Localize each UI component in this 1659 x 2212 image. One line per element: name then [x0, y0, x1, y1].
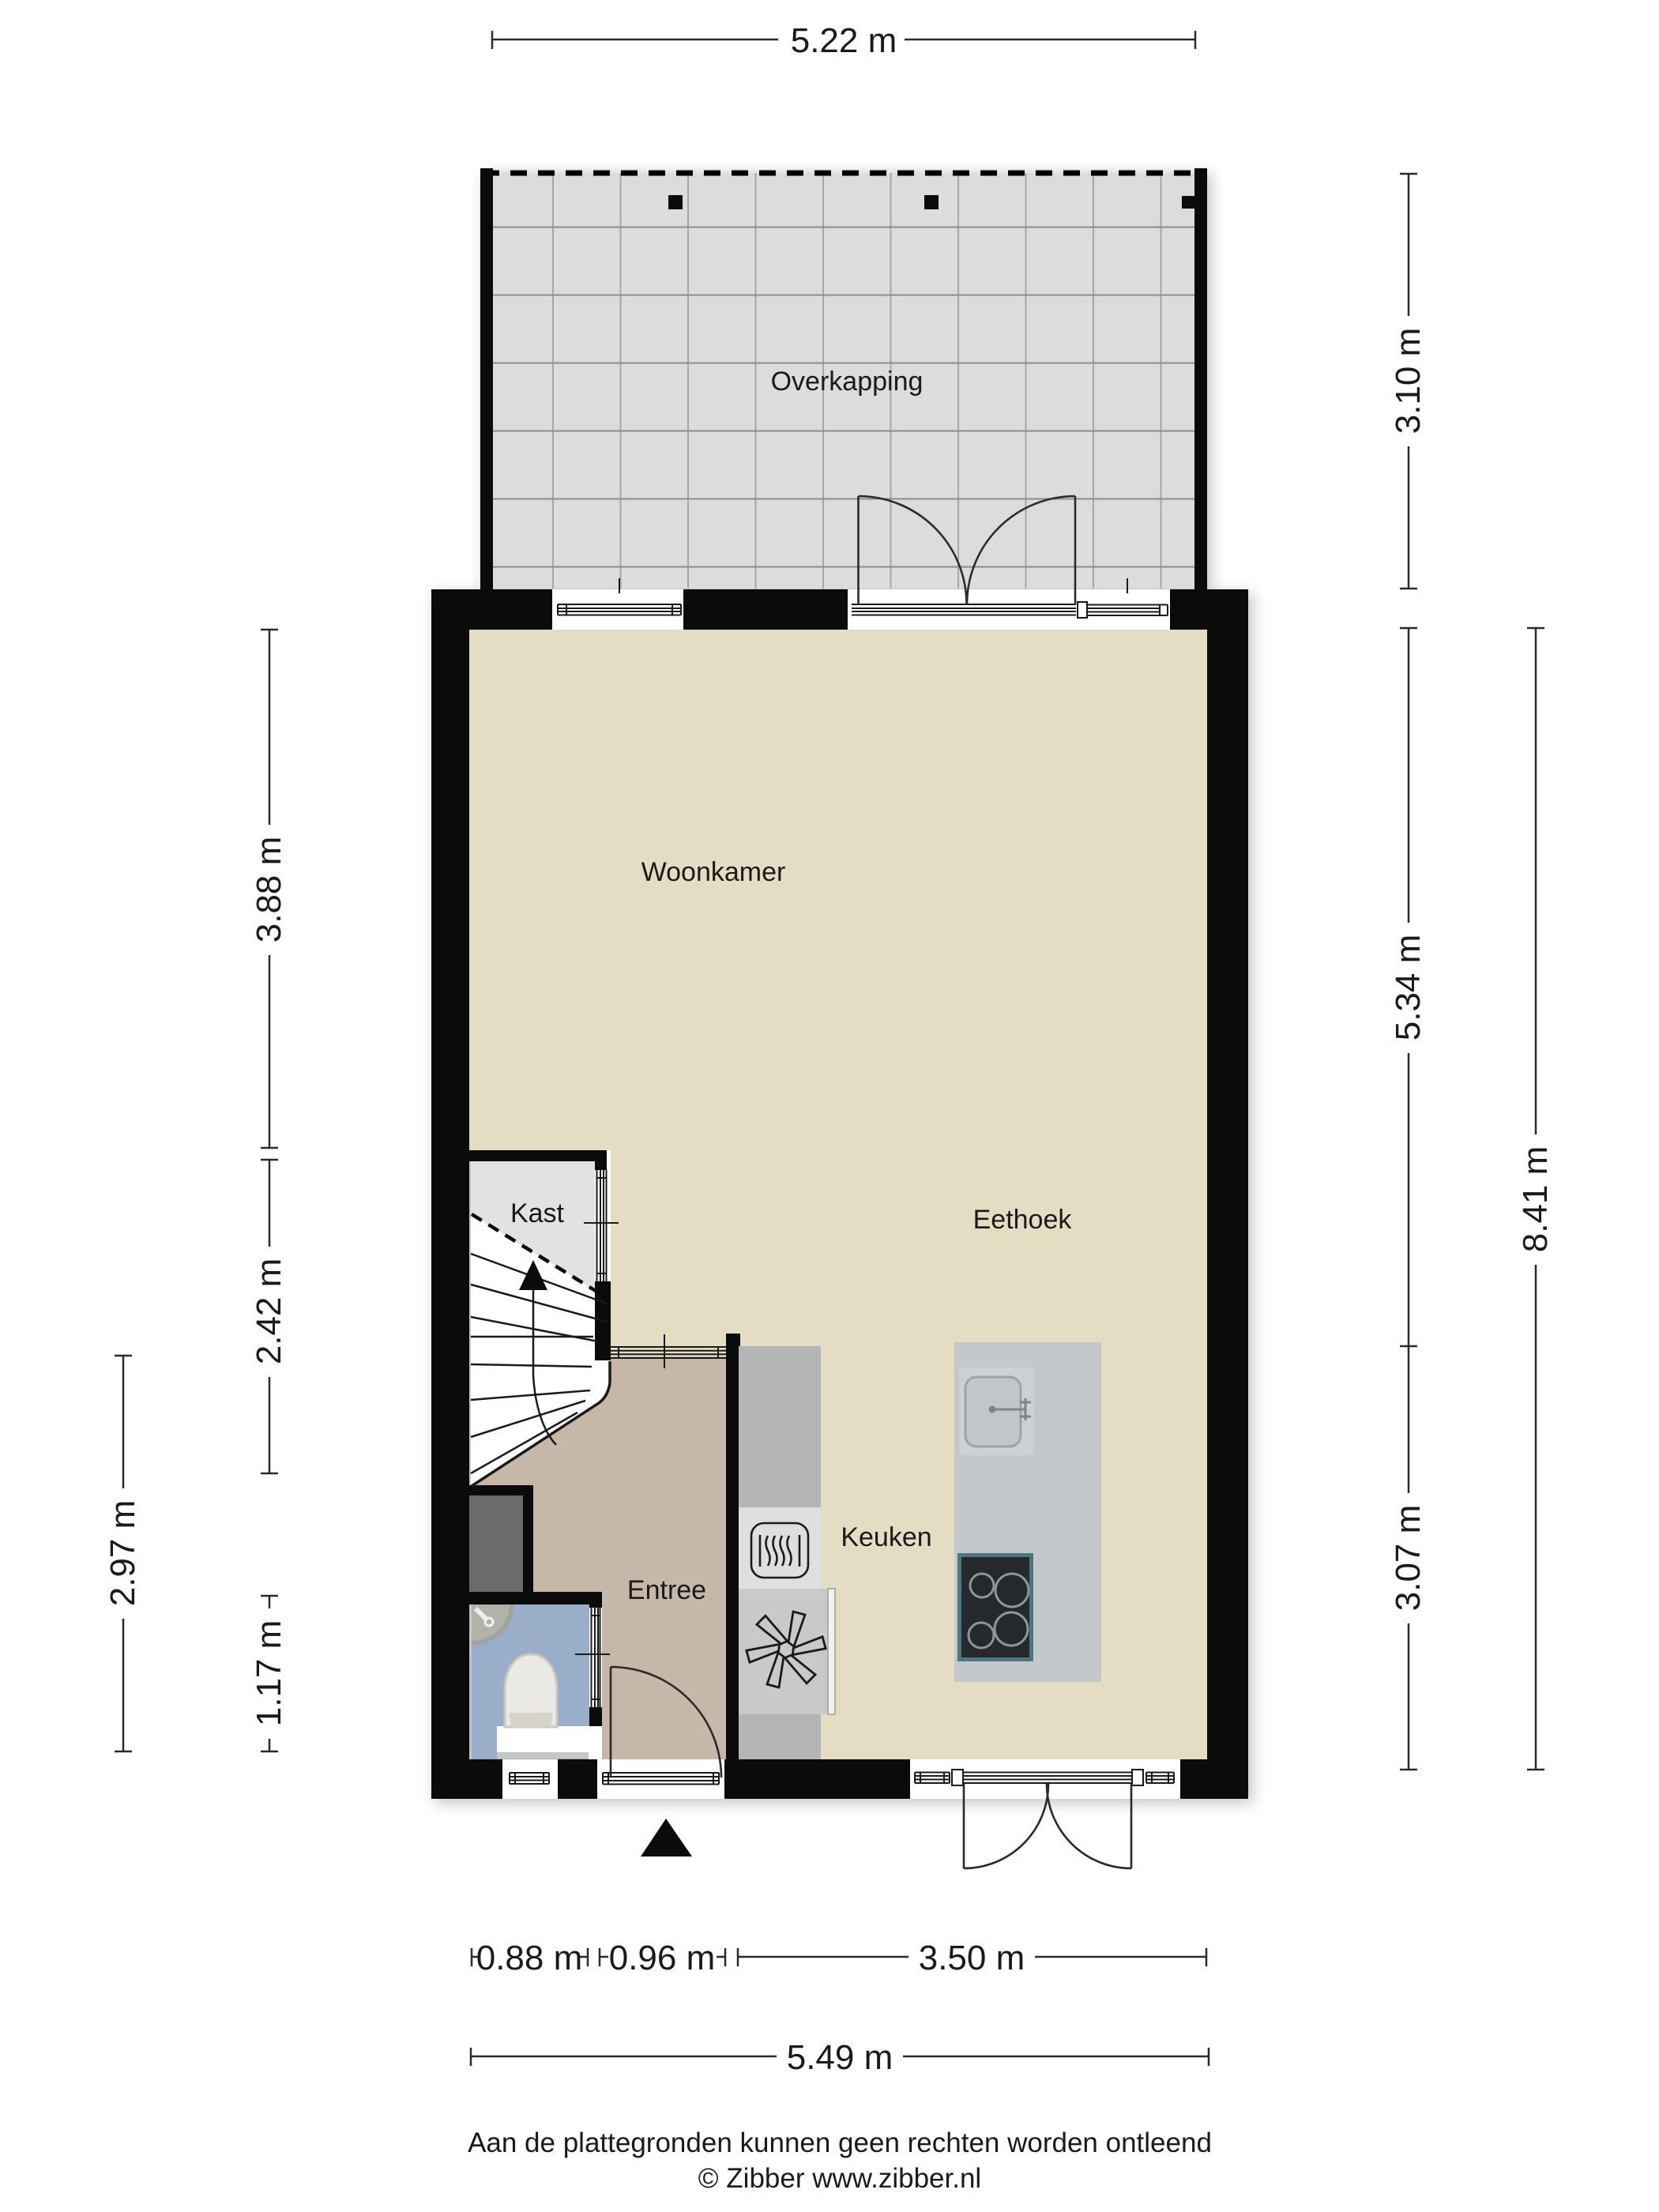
svg-text:3.50 m: 3.50 m — [919, 1939, 1025, 1977]
svg-text:5.22 m: 5.22 m — [791, 21, 897, 60]
svg-text:2.42 m: 2.42 m — [250, 1258, 288, 1365]
svg-text:0.96 m: 0.96 m — [609, 1939, 716, 1977]
svg-text:© Zibber www.zibber.nl: © Zibber www.zibber.nl — [698, 2163, 981, 2194]
svg-text:2.97 m: 2.97 m — [103, 1500, 142, 1607]
svg-text:3.88 m: 3.88 m — [250, 837, 288, 943]
svg-text:8.41 m: 8.41 m — [1516, 1146, 1555, 1253]
svg-text:5.34 m: 5.34 m — [1389, 935, 1428, 1041]
svg-text:3.10 m: 3.10 m — [1389, 328, 1428, 434]
svg-text:5.49 m: 5.49 m — [787, 2038, 893, 2077]
svg-text:Woonkamer: Woonkamer — [641, 857, 786, 887]
svg-text:Overkapping: Overkapping — [771, 367, 924, 397]
svg-text:0.88 m: 0.88 m — [476, 1939, 583, 1977]
svg-text:Aan de plattegronden kunnen ge: Aan de plattegronden kunnen geen rechten… — [468, 2127, 1212, 2158]
svg-text:3.07 m: 3.07 m — [1389, 1505, 1428, 1612]
svg-text:Entree: Entree — [627, 1575, 706, 1605]
svg-text:1.17 m: 1.17 m — [250, 1620, 288, 1727]
svg-text:Keuken: Keuken — [841, 1522, 931, 1552]
svg-text:Eethoek: Eethoek — [973, 1205, 1073, 1235]
svg-text:Kast: Kast — [510, 1198, 565, 1228]
